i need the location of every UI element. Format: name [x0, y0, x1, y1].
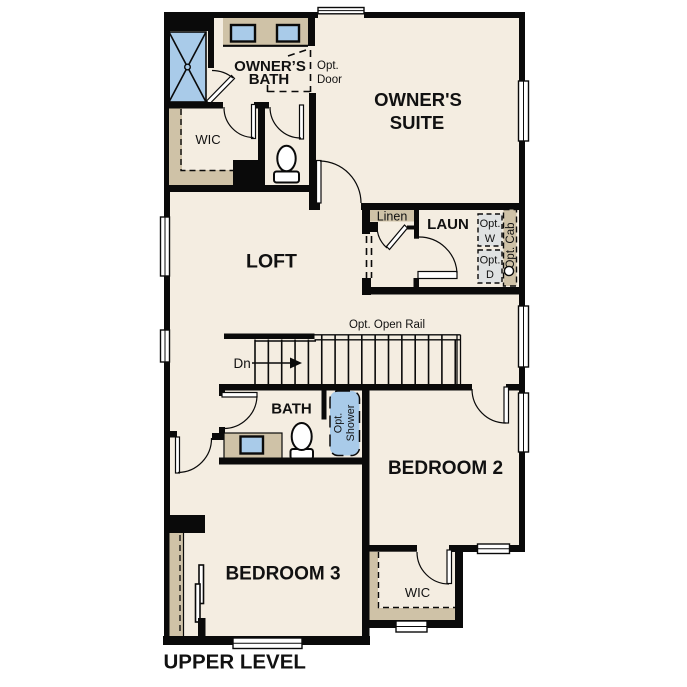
- svg-text:WIC: WIC: [195, 132, 220, 147]
- svg-text:BATH: BATH: [271, 401, 312, 418]
- svg-text:Door: Door: [317, 74, 342, 86]
- svg-text:W: W: [485, 233, 496, 245]
- svg-text:OWNER'S: OWNER'S: [374, 89, 462, 110]
- svg-text:BEDROOM 3: BEDROOM 3: [225, 564, 340, 585]
- svg-text:D: D: [486, 269, 494, 281]
- svg-text:Linen: Linen: [377, 210, 408, 224]
- svg-text:Opt.: Opt.: [333, 413, 345, 433]
- svg-text:Opt.: Opt.: [317, 60, 339, 72]
- svg-text:LOFT: LOFT: [246, 251, 297, 273]
- svg-text:Opt. Cab: Opt. Cab: [505, 222, 517, 268]
- svg-text:UPPER LEVEL: UPPER LEVEL: [164, 651, 306, 674]
- svg-text:LAUN: LAUN: [427, 216, 469, 233]
- svg-text:Opt.: Opt.: [480, 218, 501, 230]
- svg-text:Dn: Dn: [234, 356, 251, 371]
- svg-text:BEDROOM 2: BEDROOM 2: [388, 458, 503, 479]
- svg-text:SUITE: SUITE: [390, 112, 444, 133]
- svg-text:WIC: WIC: [405, 585, 430, 600]
- svg-text:Opt.: Opt.: [480, 255, 501, 267]
- svg-text:Shower: Shower: [345, 404, 357, 441]
- svg-text:BATH: BATH: [249, 71, 290, 88]
- svg-text:Opt. Open Rail: Opt. Open Rail: [349, 319, 425, 331]
